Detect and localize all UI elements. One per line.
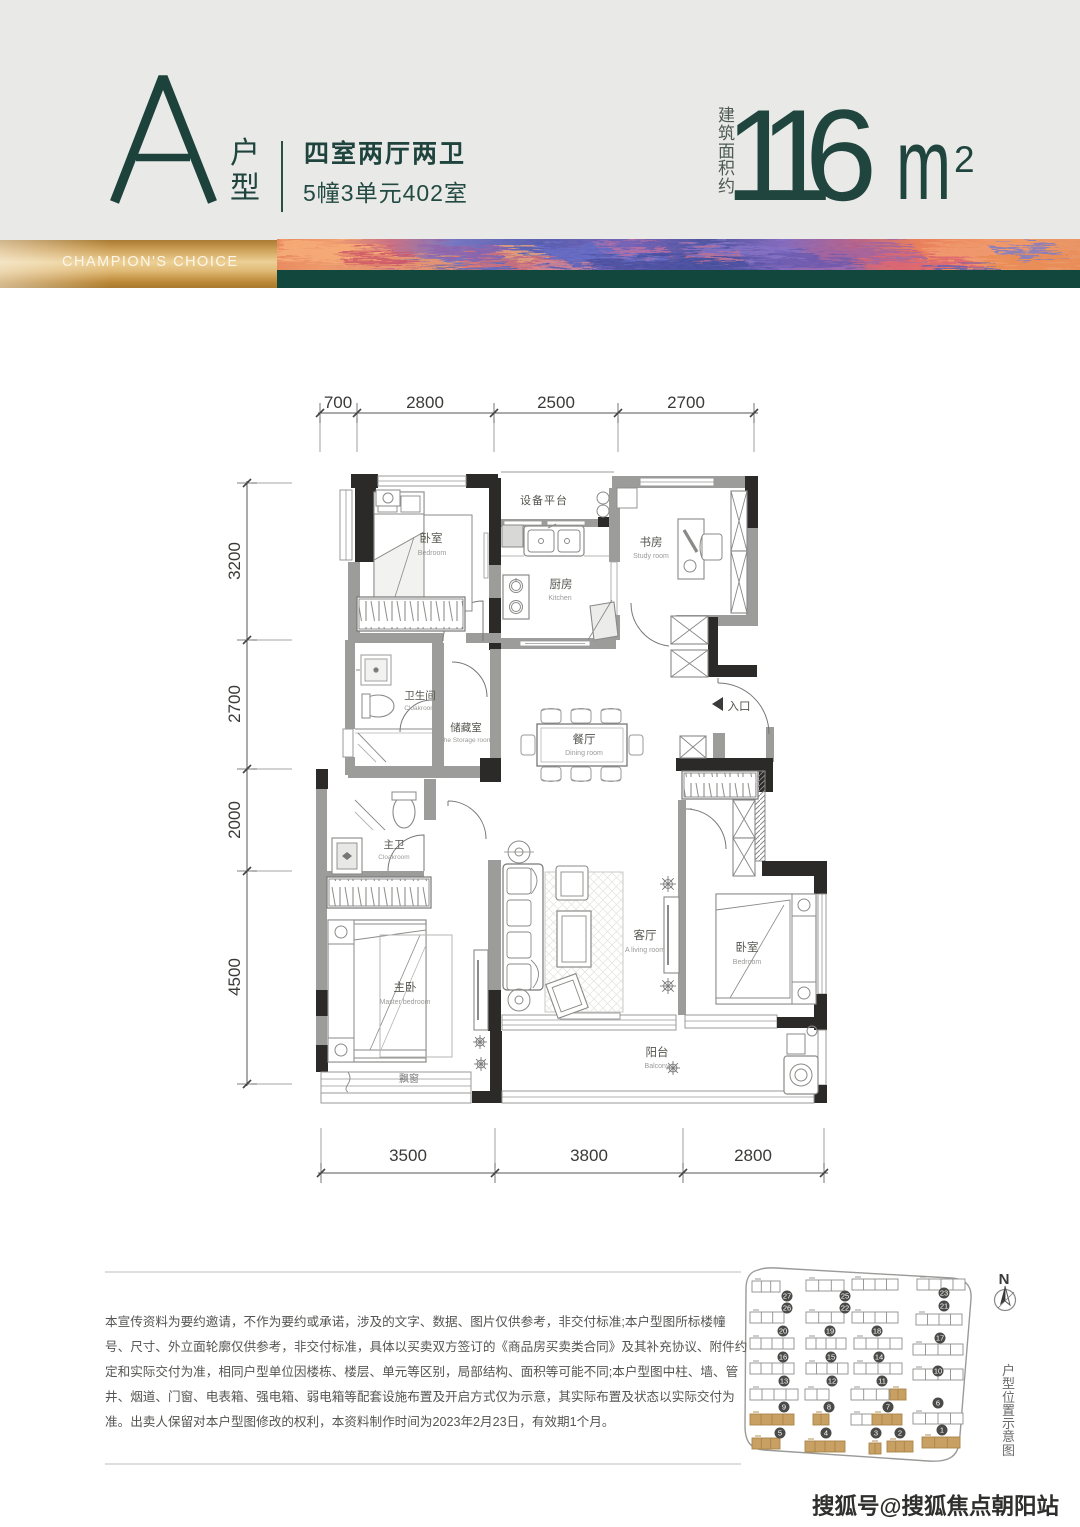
svg-text:2800: 2800: [734, 1146, 772, 1165]
svg-text:Study room: Study room: [633, 553, 669, 560]
svg-text:25: 25: [841, 1292, 849, 1301]
svg-text:Balcony: Balcony: [645, 1063, 670, 1070]
svg-text:21: 21: [940, 1302, 948, 1311]
svg-text:26: 26: [783, 1304, 791, 1313]
svg-text:14: 14: [875, 1353, 883, 1362]
svg-text:厨房: 厨房: [550, 578, 573, 591]
svg-text:Master bedroom: Master bedroom: [380, 999, 431, 1006]
svg-text:储藏室: 储藏室: [450, 721, 482, 734]
svg-text:入口: 入口: [728, 700, 751, 713]
svg-text:客厅: 客厅: [634, 928, 657, 942]
svg-text:2000: 2000: [225, 801, 244, 839]
svg-text:3800: 3800: [570, 1146, 608, 1165]
svg-text:卧室: 卧室: [736, 940, 759, 954]
svg-text:2800: 2800: [406, 393, 444, 412]
svg-text:17: 17: [936, 1334, 944, 1343]
svg-text:A living room: A living room: [625, 947, 665, 954]
svg-text:23: 23: [940, 1289, 948, 1298]
svg-text:3: 3: [874, 1429, 878, 1438]
svg-text:Cloakroom: Cloakroom: [378, 854, 409, 861]
svg-text:27: 27: [783, 1292, 791, 1301]
svg-text:11: 11: [878, 1377, 886, 1386]
svg-text:2700: 2700: [667, 393, 705, 412]
svg-text:16: 16: [779, 1353, 787, 1362]
svg-text:1: 1: [940, 1426, 944, 1435]
svg-text:19: 19: [826, 1327, 834, 1336]
svg-text:7: 7: [886, 1403, 890, 1412]
svg-text:9: 9: [782, 1403, 786, 1412]
svg-text:12: 12: [828, 1377, 836, 1386]
svg-text:3500: 3500: [389, 1146, 427, 1165]
svg-text:4: 4: [824, 1429, 828, 1438]
svg-text:20: 20: [779, 1327, 787, 1336]
svg-text:Cloakroom: Cloakroom: [404, 705, 435, 712]
svg-text:6: 6: [936, 1399, 940, 1408]
svg-text:13: 13: [780, 1377, 788, 1386]
svg-text:N: N: [999, 1271, 1010, 1288]
svg-text:4500: 4500: [225, 958, 244, 996]
svg-text:主卫: 主卫: [384, 839, 405, 851]
svg-text:Bedroom: Bedroom: [733, 959, 762, 966]
svg-text:卧室: 卧室: [420, 531, 443, 545]
svg-text:3200: 3200: [225, 542, 244, 580]
svg-text:设备平台: 设备平台: [520, 493, 568, 507]
svg-text:餐厅: 餐厅: [573, 732, 596, 746]
svg-text:5: 5: [778, 1429, 782, 1438]
svg-text:10: 10: [934, 1367, 942, 1376]
svg-text:Dining room: Dining room: [565, 750, 603, 757]
svg-text:卫生间: 卫生间: [404, 689, 436, 702]
svg-text:飘窗: 飘窗: [399, 1072, 419, 1085]
svg-text:Bedroom: Bedroom: [418, 550, 447, 557]
svg-text:书房: 书房: [640, 536, 663, 549]
svg-text:2500: 2500: [537, 393, 575, 412]
svg-text:2: 2: [898, 1429, 902, 1438]
svg-text:18: 18: [873, 1327, 881, 1336]
svg-text:The Storage room: The Storage room: [440, 737, 492, 744]
svg-text:15: 15: [827, 1353, 835, 1362]
svg-text:8: 8: [827, 1403, 831, 1412]
svg-text:22: 22: [841, 1304, 849, 1313]
svg-text:700: 700: [324, 393, 352, 412]
svg-text:主卧: 主卧: [394, 981, 417, 994]
svg-text:Kitchen: Kitchen: [548, 595, 571, 602]
svg-text:2700: 2700: [225, 685, 244, 723]
svg-text:阳台: 阳台: [646, 1045, 669, 1059]
